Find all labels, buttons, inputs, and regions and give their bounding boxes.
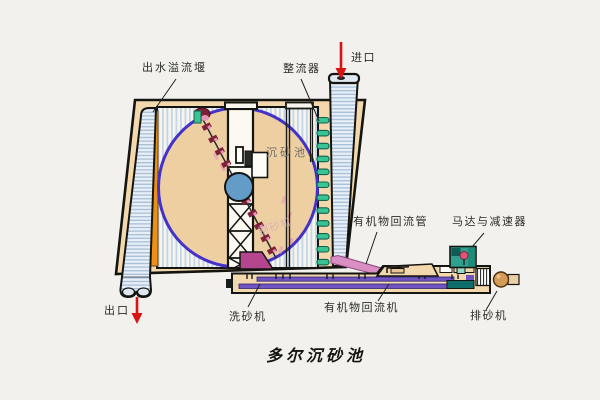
return-pump-housing (377, 264, 438, 276)
diagram-title: 多尔沉砂池 (266, 342, 366, 366)
label-motor-reducer: 马达与减速器 (452, 217, 527, 228)
outlet-arrow-icon (132, 297, 143, 324)
label-sand-washer: 洗砂机 (229, 312, 267, 323)
label-organic-return-pipe: 有机物回流管 (353, 217, 428, 228)
sand-discharge-unit (494, 272, 520, 287)
label-grit-chamber: 沉砂池 (266, 148, 308, 159)
label-outlet-weir: 出水溢流堰 (142, 63, 207, 74)
label-organic-return-machine: 有机物回流机 (324, 303, 399, 314)
dorr-grit-chamber-diagram: 出水溢流堰 整流器 进口 沉砂池 刮砂机 有机物回流管 马达与减速器 出口 洗砂… (0, 0, 600, 400)
label-sand-discharger: 排砂机 (470, 311, 508, 322)
label-flow-straightener: 整流器 (283, 64, 321, 75)
diagram-canvas (0, 0, 600, 400)
pulley-wheel (225, 173, 253, 201)
label-inlet: 进口 (351, 53, 376, 64)
label-outlet: 出口 (104, 306, 130, 317)
